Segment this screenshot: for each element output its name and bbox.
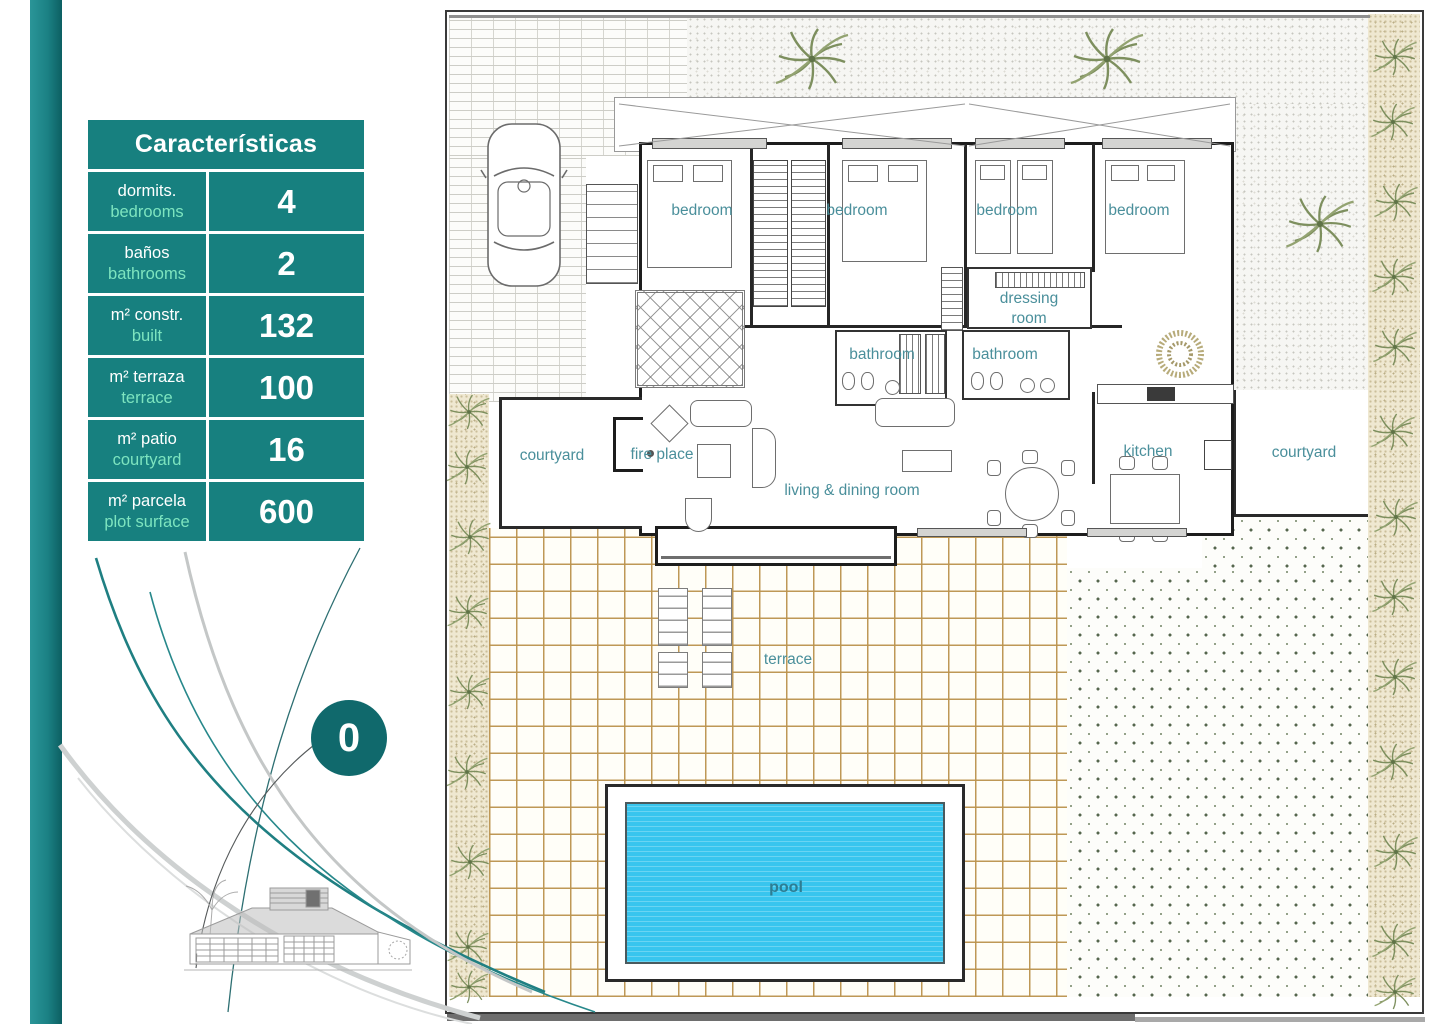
floor-plan: bedroom bedroom bedroom bedroom dressing… xyxy=(445,10,1424,1014)
pillow xyxy=(980,165,1005,180)
toilet xyxy=(971,372,984,390)
row-value: 600 xyxy=(209,482,364,541)
bay-window xyxy=(655,526,897,566)
street-edge-light xyxy=(1135,1017,1425,1022)
floor-number-badge: 0 xyxy=(311,700,387,776)
room-label-kitchen: kitchen xyxy=(1123,443,1172,461)
chair xyxy=(685,498,712,532)
row-label: m² constr. built xyxy=(88,296,206,355)
row-label: m² terraza terrace xyxy=(88,358,206,417)
kitchen-table xyxy=(1110,474,1180,524)
table-row-bathrooms: baños bathrooms 2 xyxy=(88,234,364,293)
window xyxy=(1102,138,1212,149)
interior-wall xyxy=(827,144,830,327)
row-value: 16 xyxy=(209,420,364,479)
interior-wall xyxy=(1092,144,1095,272)
label-en: terrace xyxy=(121,388,172,409)
label-en: bathrooms xyxy=(108,264,186,285)
sun-lounger xyxy=(702,588,732,646)
label-es: m² constr. xyxy=(111,305,183,326)
kitchen-stove xyxy=(1147,387,1175,401)
pillow xyxy=(848,165,878,182)
label-es: m² patio xyxy=(117,429,177,450)
wardrobe xyxy=(753,160,788,307)
row-value: 4 xyxy=(209,172,364,231)
row-value: 100 xyxy=(209,358,364,417)
characteristics-title: Características xyxy=(88,120,364,169)
table-row-built: m² constr. built 132 xyxy=(88,296,364,355)
shower xyxy=(925,334,945,394)
coffee-table xyxy=(697,444,731,478)
row-label: dormits. bedrooms xyxy=(88,172,206,231)
bay-window-glass xyxy=(661,556,891,559)
linen-closet xyxy=(941,267,963,331)
window xyxy=(975,138,1065,149)
label-en: bedrooms xyxy=(110,202,183,223)
sink xyxy=(885,380,900,395)
entrance-rug xyxy=(635,290,745,388)
sun-lounger xyxy=(702,652,732,688)
accent-vertical-bar xyxy=(30,0,62,1024)
chair xyxy=(987,510,1001,526)
room-label-terrace: terrace xyxy=(764,651,812,669)
pillow xyxy=(693,165,723,182)
table-row-plot-surface: m² parcela plot surface 600 xyxy=(88,482,364,541)
brochure-page: Características dormits. bedrooms 4 baño… xyxy=(0,0,1440,1024)
wardrobe xyxy=(791,160,826,307)
bidet xyxy=(990,372,1003,390)
sofa xyxy=(690,400,752,427)
sink xyxy=(1020,378,1035,393)
room-label-living-dining: living & dining room xyxy=(784,482,919,500)
room-label-bedroom: bedroom xyxy=(1108,202,1169,220)
table-row-bedrooms: dormits. bedrooms 4 xyxy=(88,172,364,231)
sofa xyxy=(875,398,955,427)
row-label: m² parcela plot surface xyxy=(88,482,206,541)
house-elevation-sketch xyxy=(182,874,414,974)
planting-strip-east xyxy=(1368,14,1420,997)
characteristics-table: Características dormits. bedrooms 4 baño… xyxy=(88,120,364,544)
pillow xyxy=(653,165,683,182)
north-boundary-line xyxy=(449,15,1370,18)
pillow xyxy=(1111,165,1139,181)
curved-sofa xyxy=(752,428,776,488)
planting-strip-west xyxy=(449,394,489,997)
chair xyxy=(987,460,1001,476)
dining-table-round xyxy=(1005,467,1059,521)
room-label-courtyard: courtyard xyxy=(1272,444,1337,462)
window xyxy=(917,528,1027,537)
label-es: dormits. xyxy=(118,181,177,202)
row-label: baños bathrooms xyxy=(88,234,206,293)
pillow xyxy=(1022,165,1047,180)
side-table xyxy=(902,450,952,472)
kitchen-hob xyxy=(1204,440,1232,470)
gravel-area-east xyxy=(1234,104,1368,400)
chair xyxy=(1061,460,1075,476)
room-label-bathroom: bathroom xyxy=(972,346,1037,364)
chair xyxy=(1022,450,1038,464)
entry-stairs xyxy=(586,184,638,284)
room-label-bathroom: bathroom xyxy=(849,346,914,364)
street-edge-dark xyxy=(447,1014,1135,1021)
dressing-rail xyxy=(995,272,1085,288)
room-label-pool: pool xyxy=(769,879,803,897)
room-label-bedroom: bedroom xyxy=(976,202,1037,220)
chair xyxy=(1061,510,1075,526)
label-en: built xyxy=(132,326,162,347)
pillow xyxy=(1147,165,1175,181)
room-label-dressing-room: dressing room xyxy=(982,289,1076,329)
footnote-mark: ! xyxy=(194,950,199,970)
label-en: courtyard xyxy=(113,450,182,471)
sink xyxy=(1040,378,1055,393)
window xyxy=(1087,528,1187,537)
row-value: 132 xyxy=(209,296,364,355)
shower xyxy=(899,334,921,394)
window xyxy=(652,138,767,149)
row-value: 2 xyxy=(209,234,364,293)
room-label-bedroom: bedroom xyxy=(826,202,887,220)
label-es: m² parcela xyxy=(108,491,186,512)
label-en: plot surface xyxy=(104,512,189,533)
driveway-brick-paving xyxy=(449,156,586,402)
room-label-courtyard: courtyard xyxy=(520,447,585,465)
room-label-fire-place: fire place xyxy=(631,446,694,464)
sun-lounger xyxy=(658,652,688,688)
bidet xyxy=(861,372,874,390)
pillow xyxy=(888,165,918,182)
table-row-courtyard: m² patio courtyard 16 xyxy=(88,420,364,479)
window xyxy=(842,138,952,149)
row-label: m² patio courtyard xyxy=(88,420,206,479)
sun-lounger xyxy=(658,588,688,646)
room-label-bedroom: bedroom xyxy=(671,202,732,220)
garden-dotted-area xyxy=(1067,568,1368,997)
kitchen-wall xyxy=(1092,392,1095,484)
table-row-terrace: m² terraza terrace 100 xyxy=(88,358,364,417)
label-es: baños xyxy=(125,243,170,264)
label-es: m² terraza xyxy=(109,367,184,388)
toilet xyxy=(842,372,855,390)
